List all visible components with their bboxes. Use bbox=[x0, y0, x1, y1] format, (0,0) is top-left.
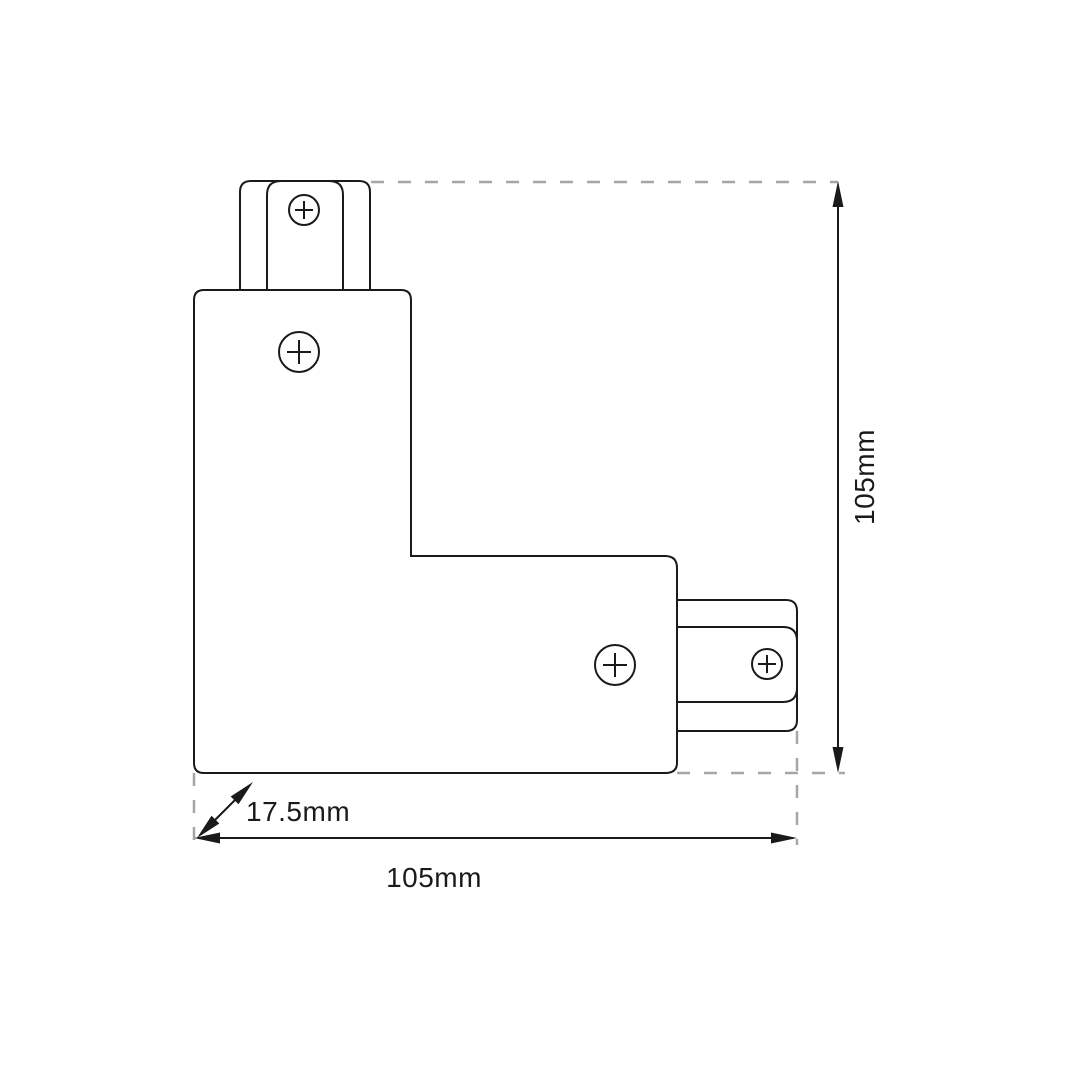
width-dimension: 105mm bbox=[194, 833, 797, 894]
height-dimension: 105mm bbox=[833, 181, 881, 773]
depth-dimension-label: 17.5mm bbox=[246, 796, 350, 827]
height-dimension-label: 105mm bbox=[849, 429, 880, 525]
side-connector-tab bbox=[676, 600, 797, 731]
arrow-left-icon bbox=[194, 833, 220, 844]
arrow-down-icon bbox=[833, 747, 844, 773]
drawing-canvas: 105mm 105mm 17.5mm bbox=[0, 0, 1080, 1080]
technical-drawing: 105mm 105mm 17.5mm bbox=[0, 0, 1080, 1080]
width-dimension-label: 105mm bbox=[386, 862, 482, 893]
top-tab-inner-profile bbox=[267, 181, 343, 290]
connector-body bbox=[194, 290, 677, 773]
arrow-right-icon bbox=[771, 833, 797, 844]
depth-dimension: 17.5mm bbox=[197, 782, 350, 838]
arrow-up-icon bbox=[833, 181, 844, 207]
top-connector-tab bbox=[240, 181, 370, 290]
side-tab-inner-profile bbox=[676, 627, 797, 702]
